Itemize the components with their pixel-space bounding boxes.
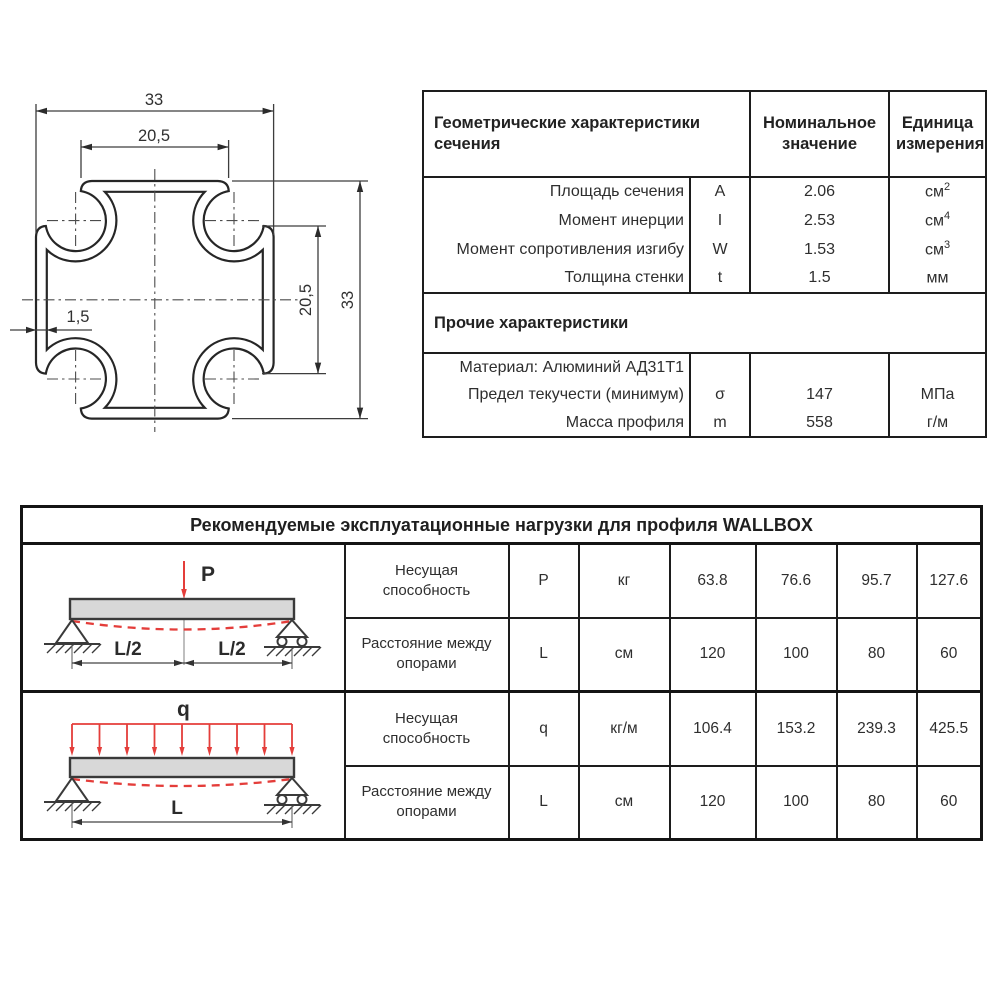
row-value: 2.06 (750, 177, 889, 206)
beam (70, 758, 294, 777)
row-label: Площадь сечения (423, 177, 690, 206)
row-value: 239.3 (837, 692, 917, 766)
row-value: 80 (837, 766, 917, 840)
row-value: 558 (750, 409, 889, 437)
section-band-row: Прочие характеристики (423, 293, 986, 353)
dim-inner-height-label: 20,5 (297, 284, 315, 316)
row-label: Расстояние между опорами (345, 618, 509, 692)
point-load-diagram: P L/2 L/2 (25, 547, 342, 689)
loads-title: Рекомендуемые эксплуатационные нагрузки … (22, 507, 982, 544)
distributed-load-diagram: q (25, 694, 342, 838)
row-label: Масса профиля (423, 409, 690, 437)
unit-base: см (925, 184, 944, 201)
dim-total-width-label: 33 (145, 91, 163, 109)
table-row: P L/2 L/2 Несущая способность P кг 63.8 (22, 544, 982, 618)
section-other-title: Прочие характеристики (423, 293, 986, 353)
row-value: 425.5 (917, 692, 982, 766)
distributed-load-lines (72, 724, 292, 749)
table-row: Материал: Алюминий АД31Т1 (423, 353, 986, 381)
row-value: 95.7 (837, 544, 917, 618)
load-p-label: P (201, 563, 215, 586)
col-header-nominal: Номинальное значение (750, 91, 889, 177)
centerlines (22, 169, 302, 432)
row-unit: кг (579, 544, 670, 618)
row-symbol: L (509, 766, 579, 840)
load-q-label: q (177, 698, 190, 721)
row-unit: см (579, 766, 670, 840)
row-label: Момент инерции (423, 206, 690, 235)
deflection-curve (72, 779, 292, 786)
dim-total-height-label: 33 (339, 291, 357, 309)
row-symbol: W (690, 235, 750, 264)
row-label: Материал: Алюминий АД31Т1 (423, 353, 690, 381)
row-value: 153.2 (756, 692, 837, 766)
row-label: Несущая способность (345, 544, 509, 618)
row-symbol: A (690, 177, 750, 206)
row-symbol: t (690, 264, 750, 293)
beam-diagram-point-load: P L/2 L/2 (22, 544, 345, 692)
row-unit: см2 (889, 177, 986, 206)
profile-cross-section-drawing: 33 20,5 1,5 20,5 33 (10, 85, 400, 445)
row-value: 63.8 (670, 544, 756, 618)
table-row: Толщина стенки t 1.5 мм (423, 264, 986, 293)
loads-table: Рекомендуемые эксплуатационные нагрузки … (20, 505, 983, 841)
row-value: 1.53 (750, 235, 889, 264)
extension-lines (72, 645, 292, 669)
span-right-label: L/2 (218, 639, 245, 660)
row-value: 2.53 (750, 206, 889, 235)
table-row: q (22, 692, 982, 766)
distributed-load-arrowheads (69, 747, 294, 756)
table-row: Момент сопротивления изгибу W 1.53 см3 (423, 235, 986, 264)
unit-sup: 4 (944, 210, 950, 222)
row-unit: мм (889, 264, 986, 293)
dim-inner-width-label: 20,5 (138, 127, 170, 145)
row-symbol (690, 353, 750, 381)
row-unit: см3 (889, 235, 986, 264)
row-value: 1.5 (750, 264, 889, 293)
row-value (750, 353, 889, 381)
row-value: 120 (670, 618, 756, 692)
table-row: Площадь сечения A 2.06 см2 (423, 177, 986, 206)
row-symbol: m (690, 409, 750, 437)
loads-title-row: Рекомендуемые эксплуатационные нагрузки … (22, 507, 982, 544)
row-symbol: q (509, 692, 579, 766)
row-value: 147 (750, 381, 889, 409)
row-unit: кг/м (579, 692, 670, 766)
table-row: Момент инерции I 2.53 см4 (423, 206, 986, 235)
row-unit: см (579, 618, 670, 692)
row-label: Расстояние между опорами (345, 766, 509, 840)
row-label: Несущая способность (345, 692, 509, 766)
row-symbol: L (509, 618, 579, 692)
row-unit (889, 353, 986, 381)
table-row: Предел текучести (минимум) σ 147 МПа (423, 381, 986, 409)
row-label: Момент сопротивления изгибу (423, 235, 690, 264)
row-value: 60 (917, 766, 982, 840)
row-symbol: P (509, 544, 579, 618)
row-unit: см4 (889, 206, 986, 235)
geometry-header-row: Геометрические характеристики сечения Но… (423, 91, 986, 177)
unit-base: см (925, 212, 944, 229)
unit-sup: 2 (944, 181, 950, 193)
span-label: L (171, 798, 183, 819)
row-value: 100 (756, 618, 837, 692)
unit-sup: 3 (944, 239, 950, 251)
row-value: 100 (756, 766, 837, 840)
row-unit: МПа (889, 381, 986, 409)
row-symbol: σ (690, 381, 750, 409)
col-header-unit: Единица измерения (889, 91, 986, 177)
unit-base: см (925, 241, 944, 258)
point-load-arrowhead (181, 589, 187, 599)
row-value: 120 (670, 766, 756, 840)
row-label: Предел текучести (минимум) (423, 381, 690, 409)
row-value: 106.4 (670, 692, 756, 766)
row-value: 60 (917, 618, 982, 692)
span-left-label: L/2 (114, 639, 141, 660)
geometry-title: Геометрические характеристики сечения (423, 91, 750, 177)
beam-diagram-distributed-load: q (22, 692, 345, 840)
row-unit: г/м (889, 409, 986, 437)
row-value: 127.6 (917, 544, 982, 618)
dimension-lines (10, 104, 368, 419)
deflection-curve (72, 621, 292, 630)
row-value: 76.6 (756, 544, 837, 618)
dim-wall-label: 1,5 (67, 308, 90, 326)
row-value: 80 (837, 618, 917, 692)
geometry-table: Геометрические характеристики сечения Но… (422, 90, 987, 438)
table-row: Масса профиля m 558 г/м (423, 409, 986, 437)
beam (70, 599, 294, 619)
row-symbol: I (690, 206, 750, 235)
unit-base: мм (927, 270, 949, 287)
row-label: Толщина стенки (423, 264, 690, 293)
